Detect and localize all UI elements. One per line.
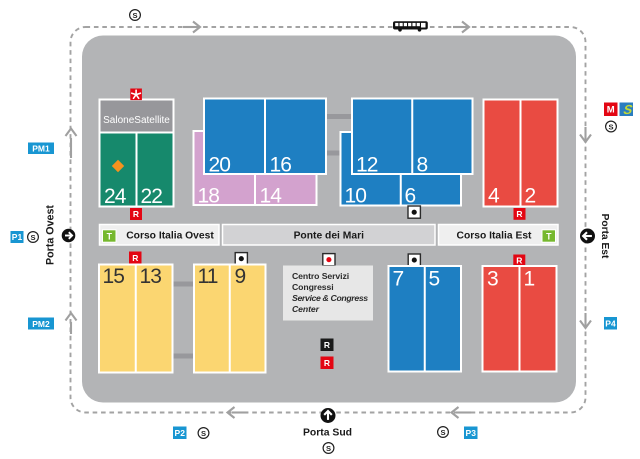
svg-text:13: 13 [140,265,162,288]
svg-text:T: T [546,231,552,241]
svg-text:S: S [132,11,137,20]
svg-text:15: 15 [103,265,125,288]
svg-text:11: 11 [198,265,218,288]
svg-text:7: 7 [393,268,404,291]
svg-text:Corso Italia Est: Corso Italia Est [457,231,533,242]
svg-text:5: 5 [429,268,440,291]
svg-text:P3: P3 [466,428,477,438]
svg-text:10: 10 [345,185,367,208]
svg-text:Corso Italia Ovest: Corso Italia Ovest [126,231,214,242]
svg-text:Congressi: Congressi [292,282,334,292]
svg-text:R: R [324,340,330,350]
svg-text:PM2: PM2 [32,319,50,329]
svg-text:22: 22 [141,185,163,208]
svg-text:R: R [133,209,139,219]
svg-text:PM1: PM1 [32,144,50,154]
svg-text:S: S [608,123,613,132]
svg-text:P1: P1 [12,232,23,242]
svg-text:M: M [607,105,615,116]
svg-text:SaloneSatellite: SaloneSatellite [103,115,170,126]
svg-text:S: S [440,428,445,437]
svg-text:3: 3 [487,268,498,291]
svg-text:6: 6 [405,185,416,208]
svg-text:Center: Center [292,304,320,314]
svg-text:20: 20 [209,154,231,177]
svg-text:Service & Congress: Service & Congress [292,293,368,303]
svg-text:Ponte dei Mari: Ponte dei Mari [294,231,365,242]
svg-text:1: 1 [524,268,535,291]
svg-text:18: 18 [198,185,220,208]
svg-text:T: T [107,231,113,241]
svg-text:16: 16 [270,154,292,177]
svg-text:S: S [201,429,206,438]
svg-text:9: 9 [235,265,246,288]
svg-text:R: R [516,209,522,219]
svg-text:R: R [132,253,138,263]
svg-text:S: S [326,444,331,453]
svg-text:Porta Ovest: Porta Ovest [45,205,57,265]
svg-text:Porta Est: Porta Est [599,214,610,259]
svg-text:2: 2 [525,185,536,208]
svg-text:8: 8 [417,154,428,177]
svg-text:R: R [516,256,522,266]
svg-text:R: R [324,358,330,368]
svg-text:S: S [30,233,35,242]
svg-text:P2: P2 [175,428,186,438]
svg-text:P4: P4 [605,319,616,329]
svg-text:4: 4 [488,185,500,208]
svg-text:12: 12 [356,154,378,177]
svg-text:24: 24 [104,185,127,208]
svg-text:Porta Sud: Porta Sud [303,428,352,439]
svg-text:Centro Servizi: Centro Servizi [292,271,349,281]
svg-text:14: 14 [260,185,283,208]
